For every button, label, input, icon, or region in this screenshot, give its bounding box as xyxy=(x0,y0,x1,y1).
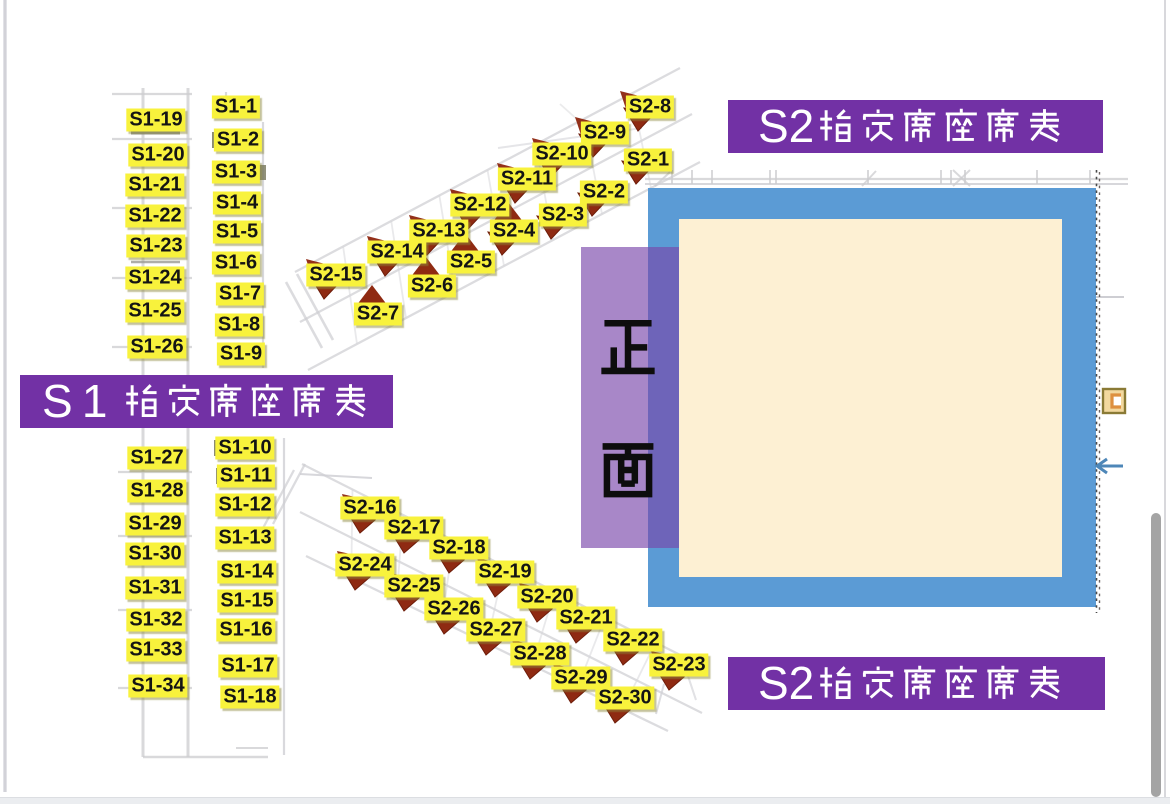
svg-text:S2: S2 xyxy=(758,657,814,709)
svg-text:S 1: S 1 xyxy=(42,375,107,427)
svg-text:S2: S2 xyxy=(758,100,814,152)
